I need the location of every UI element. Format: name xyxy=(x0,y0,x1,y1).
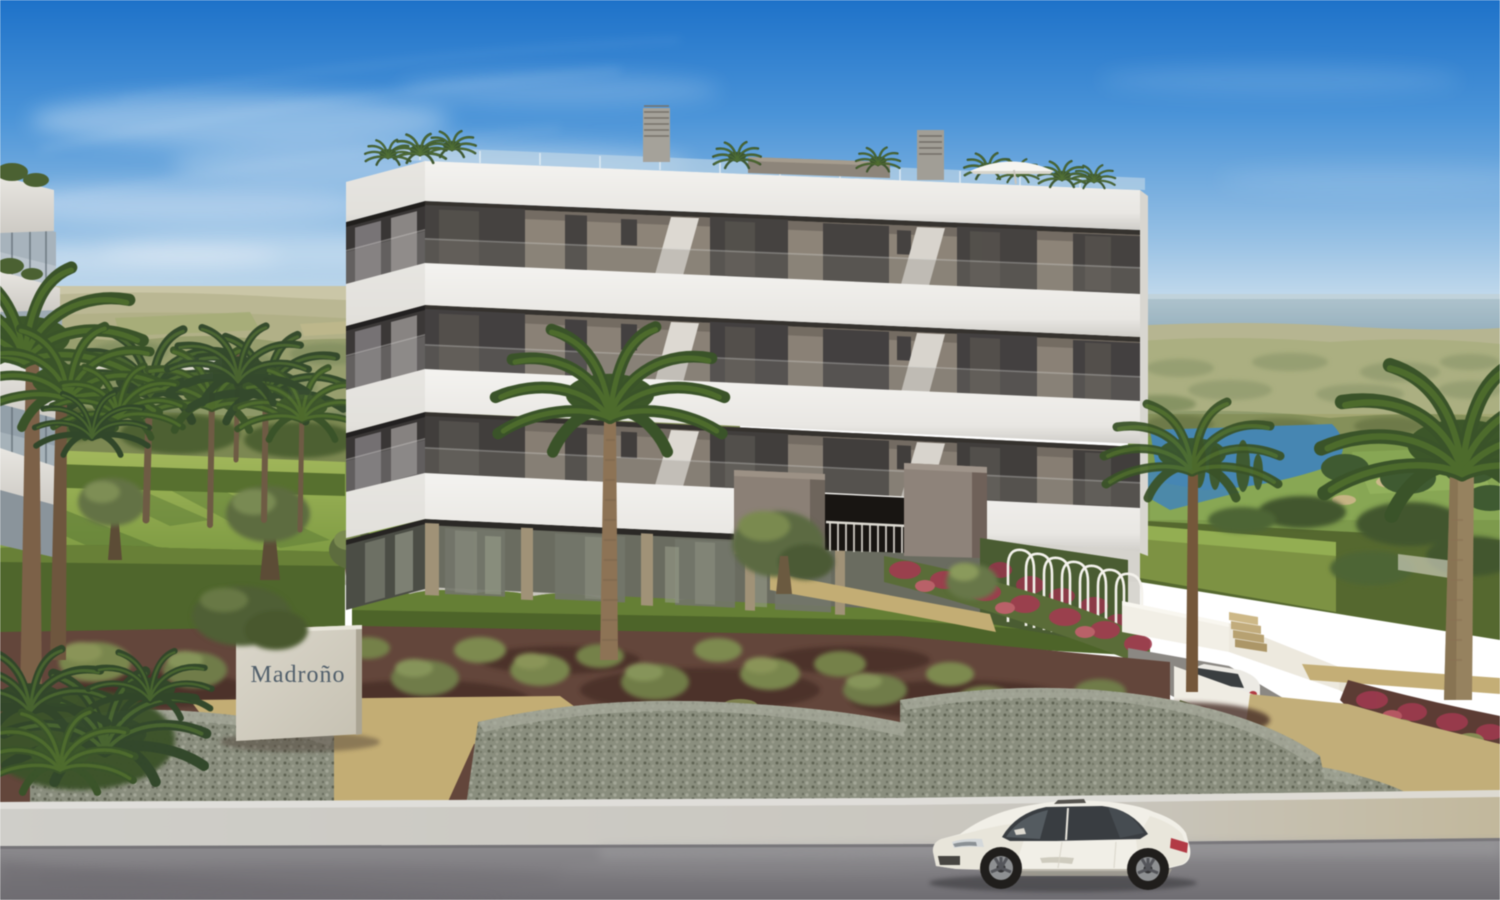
svg-text:Madroño: Madroño xyxy=(251,662,346,688)
